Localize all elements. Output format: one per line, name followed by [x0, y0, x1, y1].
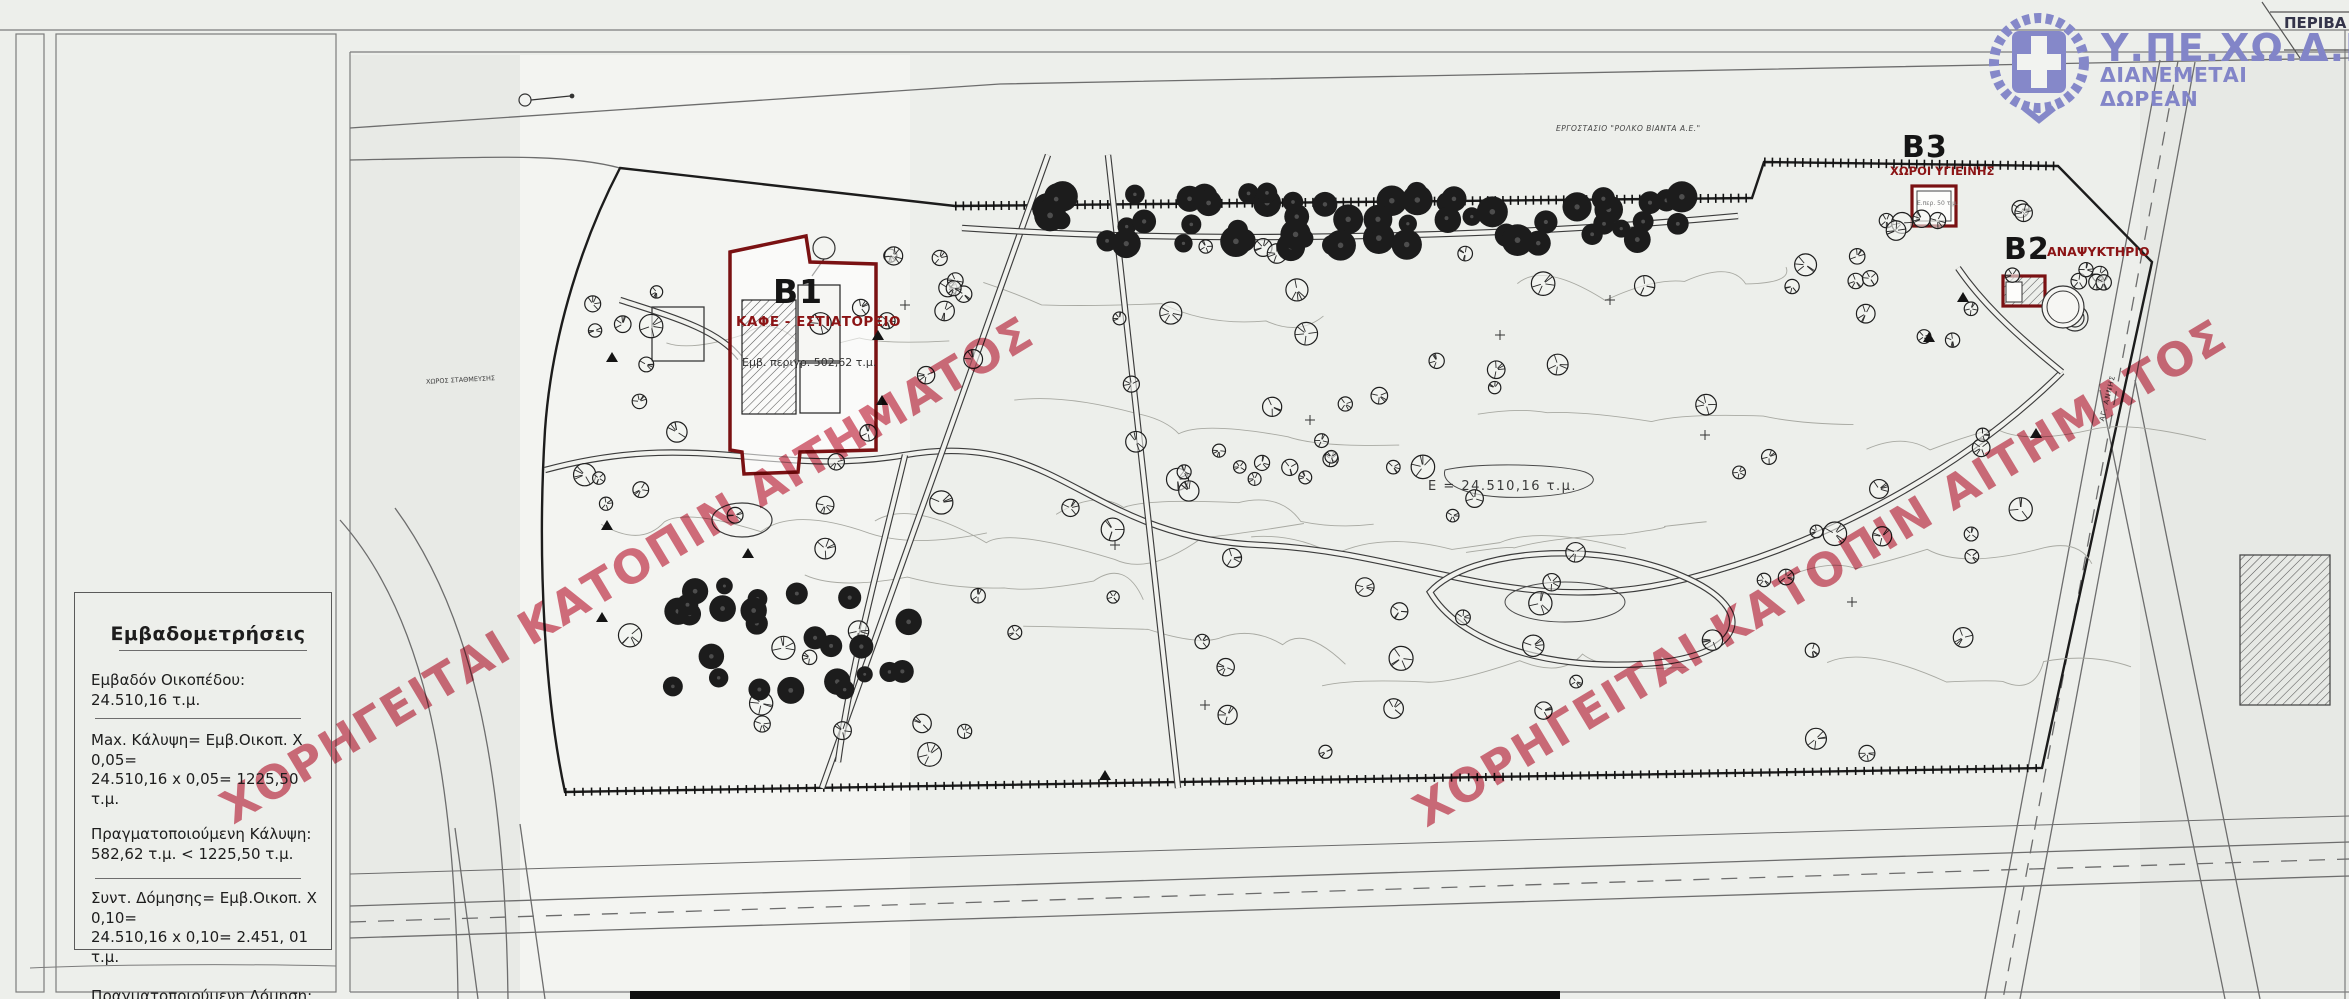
panel-entry: Πραγματοποιούμενη Κάλυψη: 582,62 τ.μ. < …	[91, 825, 325, 864]
panel-entry: Πραγματοποιούμενη Δόμηση: 670,12 τ.μ. < …	[91, 987, 325, 999]
sheet-frame	[0, 2, 2349, 999]
building-b2-code: B2	[2004, 232, 2050, 267]
panel-entry-line: Συντ. Δόμησης= Εμβ.Οικοπ. Χ 0,10=	[91, 889, 325, 928]
divider	[95, 878, 301, 879]
scanned-site-plan-sheet: B1 ΚΑΦΕ - ΕΣΤΙΑΤΟΡΕΙΟ Εμβ. περιγρ. 502,6…	[0, 0, 2349, 999]
corner-label: ΠΕΡΙΒΑ	[2284, 14, 2346, 32]
divider	[95, 718, 301, 719]
site-area-label: Ε = 24.510,16 τ.μ.	[1428, 479, 1577, 494]
distribution-note: ΔΙΑΝΕΜΕΤΑΙ ΔΩΡΕΑΝ	[2100, 63, 2349, 111]
panel-entry-line: Πραγματοποιούμενη Δόμηση:	[91, 987, 325, 999]
building-b3-area-label: Ε.περ. 50 τ.μ.	[1917, 200, 1958, 207]
pond-island	[1505, 582, 1625, 622]
building-b3-code: B3	[1902, 130, 1948, 165]
panel-entry-line: Max. Κάλυψη= Εμβ.Οικοπ. Χ 0,05=	[91, 731, 325, 770]
panel-title: Εμβαδομετρήσεις	[91, 623, 325, 645]
divider	[119, 650, 307, 651]
area-measurements-panel: Εμβαδομετρήσεις Εμβαδόν Οικοπέδου: 24.51…	[74, 592, 332, 950]
panel-entry-line: Πραγματοποιούμενη Κάλυψη:	[91, 825, 325, 845]
panel-entry: Εμβαδόν Οικοπέδου: 24.510,16 τ.μ.	[91, 671, 325, 710]
building-b2-name: ΑΝΑΨΥΚΤΗΡΙΟ	[2047, 244, 2150, 259]
panel-entry-line: 582,62 τ.μ. < 1225,50 τ.μ.	[91, 845, 325, 865]
building-b3-name: ΧΩΡΟΙ ΥΓΙΕΙΝΗΣ	[1890, 164, 1994, 178]
bottom-scan-strip	[630, 991, 1560, 999]
panel-entry-line: 24.510,16 x 0,10= 2.451, 01 τ.μ.	[91, 928, 325, 967]
site-plan-drawing	[0, 0, 2349, 999]
panel-entry: Max. Κάλυψη= Εμβ.Οικοπ. Χ 0,05= 24.510,1…	[91, 731, 325, 809]
panel-entry-line: 24.510,16 x 0,05= 1225,50 τ.μ.	[91, 770, 325, 809]
factory-label: ΕΡΓΟΣΤΑΣΙΟ "ΡΟΛΚΟ ΒΙΑΝΤΑ Α.Ε."	[1556, 124, 1701, 133]
panel-entry: Συντ. Δόμησης= Εμβ.Οικοπ. Χ 0,10= 24.510…	[91, 889, 325, 967]
national-emblem-icon	[1986, 4, 2092, 126]
building-b1-area-label: Εμβ. περιγρ. 502,62 τ.μ.	[742, 356, 876, 369]
panel-entry-line: Εμβαδόν Οικοπέδου: 24.510,16 τ.μ.	[91, 671, 325, 710]
building-b1-code: B1	[773, 272, 823, 311]
building-b1-name: ΚΑΦΕ - ΕΣΤΙΑΤΟΡΕΙΟ	[736, 314, 901, 330]
